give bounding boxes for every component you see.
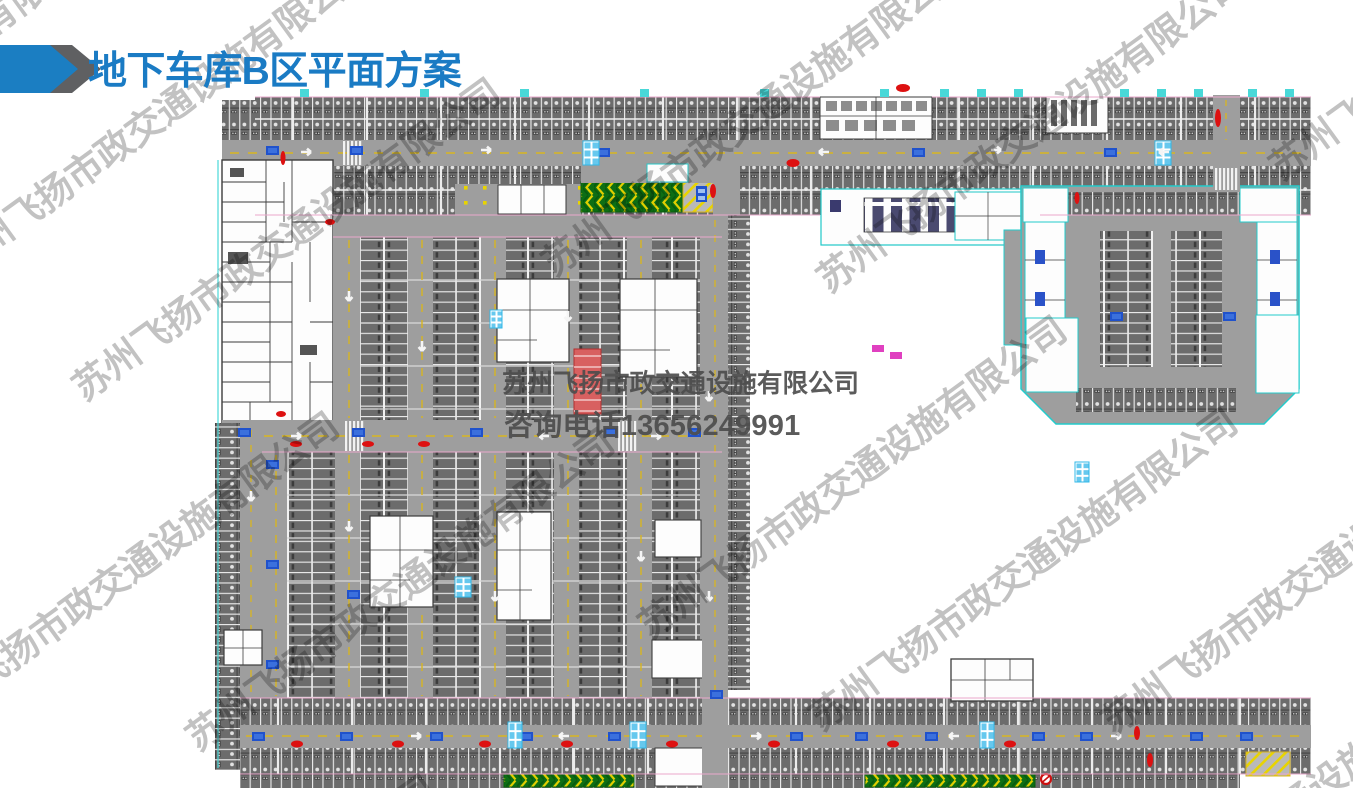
svg-text:地下车库B区平面方案: 地下车库B区平面方案 xyxy=(88,50,463,93)
svg-text:苏州飞扬市政交通设施有限公司: 苏州飞扬市政交通设施有限公司 xyxy=(502,369,859,398)
svg-text:咨询电话13656249991: 咨询电话13656249991 xyxy=(504,409,800,442)
